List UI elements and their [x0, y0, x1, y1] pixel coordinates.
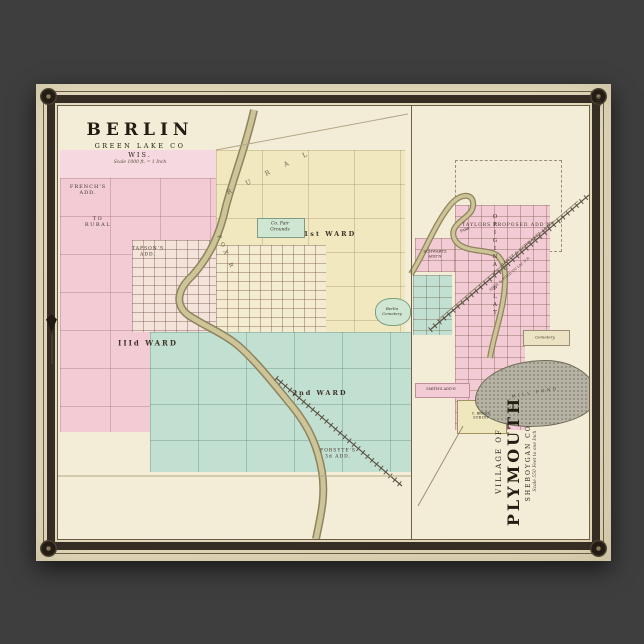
corner-rosette-icon — [40, 540, 57, 557]
tapsons-line1: TAPSON'S — [132, 246, 164, 252]
frenchs-add-label: FRENCH'S ADD. — [70, 184, 106, 197]
corner-rosette-icon — [40, 88, 57, 105]
berlin-scale: Scale 1000 ft. = 1 Inch — [80, 160, 200, 165]
fairgrounds-label: Co. Fair Grounds — [270, 221, 289, 232]
forsytes-add-label: FORSYTE'S 3d ADD. — [320, 448, 356, 459]
third-ward-label: IIId WARD — [118, 340, 178, 349]
plymouth-title-scale: Scale 550 Feet to one Inch — [533, 386, 538, 536]
brand-line2: SUB DIV — [472, 416, 490, 420]
page-number: 190 — [594, 96, 601, 107]
tapsons-add-label: TAPSON'S ADD. — [132, 246, 164, 257]
berlin-county: GREEN LAKE CO — [80, 142, 200, 150]
second-ward-label: 2nd WARD — [292, 389, 347, 397]
berlin-cemetery-label: Berlin Cemetery — [382, 306, 402, 316]
atlas-poster: 190 — [36, 84, 611, 561]
schwartz-addn-label: SCHWARTZ ADD'N — [423, 249, 446, 258]
emblem-stem-icon — [51, 334, 53, 364]
plymouth-title-block: VILLAGE OF PLYMOUTH SHEBOYGAN CO. Scale … — [495, 386, 575, 536]
plymouth-title-county: SHEBOYGAN CO. — [525, 386, 532, 536]
fairgrounds-line1: Co. Fair — [270, 221, 289, 227]
forsytes-line1: FORSYTE'S — [320, 448, 356, 454]
to-rural-label: TO RURAL — [85, 216, 111, 229]
first-ward-label: 1st WARD — [304, 230, 356, 238]
frenchs-add-line2: ADD. — [70, 190, 106, 196]
berlin-title: BERLIN — [80, 120, 200, 140]
berlin-title-block: BERLIN GREEN LAKE CO WIS. Scale 1000 ft.… — [80, 120, 200, 165]
forsytes-line2: 3d ADD. — [320, 454, 356, 460]
panel-divider-line — [411, 106, 412, 539]
plymouth-title-name: PLYMOUTH — [504, 386, 523, 536]
photo-backdrop: 190 — [0, 0, 644, 644]
mullet-river-outline — [411, 196, 505, 358]
tapsons-line2: ADD. — [132, 252, 164, 258]
fairgrounds-line2: Grounds — [270, 227, 289, 233]
berlin-cemetery-line2: Cemetery — [382, 311, 402, 316]
fox-river-path — [179, 110, 323, 539]
map-sheet: BERLIN GREEN LAKE CO WIS. Scale 1000 ft.… — [58, 106, 589, 539]
to-rural-line2: RURAL — [85, 222, 111, 228]
smiths-addn-label: SMITH'S ADD'N — [426, 387, 455, 391]
berlin-state: WIS. — [80, 151, 200, 159]
plymouth-cemetery-label: Cemetery — [535, 335, 555, 340]
brand-subdiv-label: C. BRAND SUB DIV — [472, 412, 490, 421]
schwartz-line2: ADD'N — [423, 254, 446, 259]
plymouth-south-road-line — [418, 426, 463, 506]
corner-rosette-icon — [590, 540, 607, 557]
emblem-diamond-icon — [46, 314, 57, 332]
plymouth-title-prefix: VILLAGE OF — [495, 386, 503, 536]
